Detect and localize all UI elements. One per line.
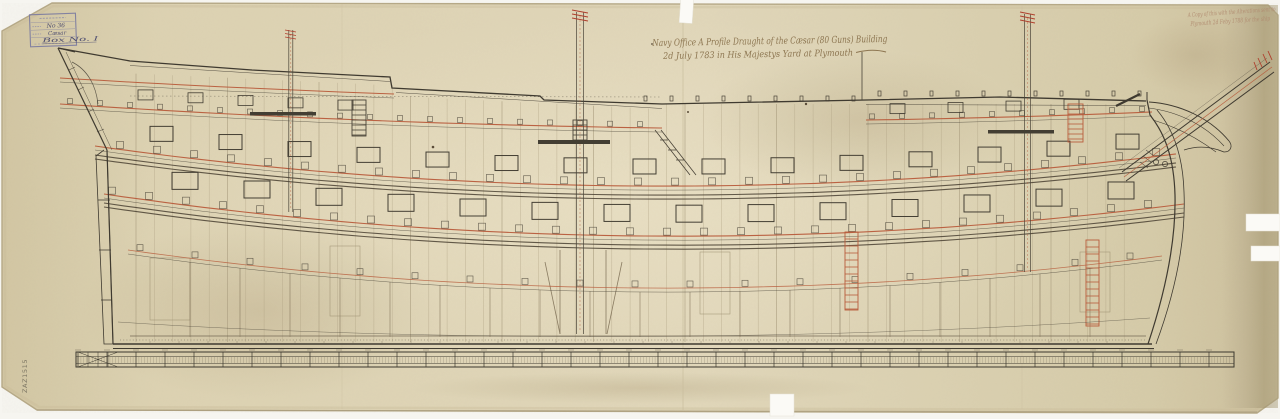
scanned-ship-plan: Navy Office A Profile Draught of the Cæs…: [0, 0, 1280, 419]
plan-canvas: Navy Office A Profile Draught of the Cæs…: [0, 0, 1280, 419]
archive-reference-number: ZAZ1515: [21, 359, 29, 393]
tape-right-2: [1251, 246, 1280, 261]
tape-top: [679, 0, 694, 23]
stamp-registry-number: No 36: [46, 22, 66, 30]
tape-right-1: [1246, 214, 1280, 231]
tape-bottom: [770, 394, 794, 416]
